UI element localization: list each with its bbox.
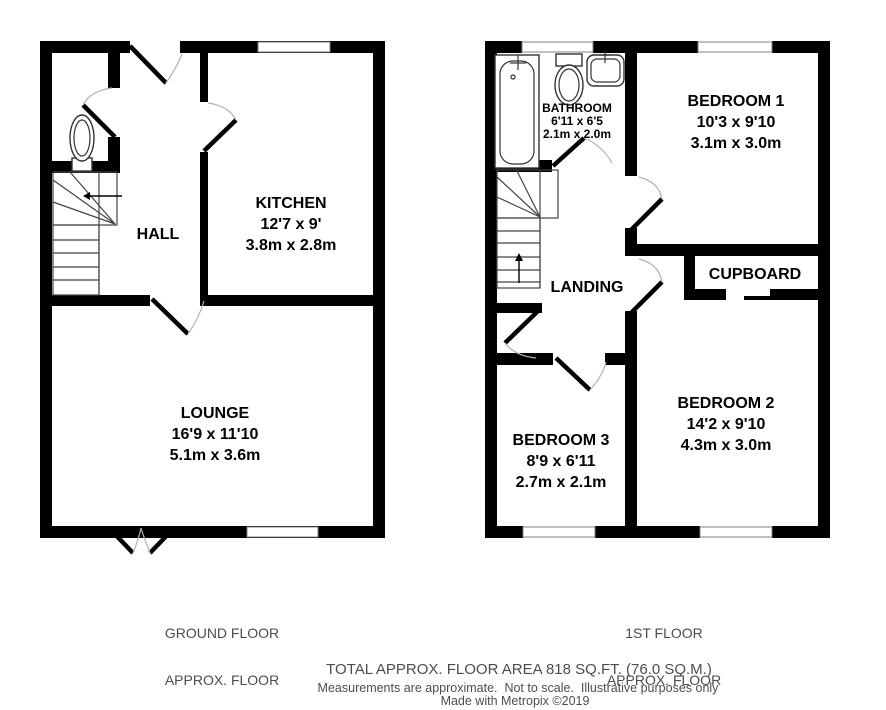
bedroom3-dim-imperial: 8'9 x 6'11 [513, 451, 610, 472]
gf-caption-line1: GROUND FLOOR [165, 626, 279, 642]
bedroom1-dim-imperial: 10'3 x 9'10 [688, 112, 785, 133]
bedroom1-door-leaf [631, 199, 662, 230]
ff-stairs [497, 170, 558, 288]
bedroom2-dim-imperial: 14'2 x 9'10 [678, 414, 775, 435]
lounge-dim-imperial: 16'9 x 11'10 [170, 424, 261, 445]
bedroom3-door-leaf [556, 358, 590, 390]
floorplan-canvas: HALL KITCHEN 12'7 x 9' 3.8m x 2.8m LOUNG… [0, 0, 886, 710]
hall-name: HALL [137, 224, 180, 245]
entrance-door-leaf [130, 46, 166, 83]
gf-interior-walls [40, 53, 385, 306]
bedroom1-dim-metric: 3.1m x 3.0m [688, 133, 785, 154]
bedroom2-door-arc [639, 259, 662, 282]
kitchen-dim-metric: 3.8m x 2.8m [246, 235, 337, 256]
ff-bathtub [495, 55, 539, 168]
bedroom2-door-leaf [631, 282, 662, 313]
lounge-dim-metric: 5.1m x 3.6m [170, 445, 261, 466]
bathroom-door-arc [584, 138, 612, 163]
hall-label: HALL [137, 224, 180, 245]
kitchen-label: KITCHEN 12'7 x 9' 3.8m x 2.8m [246, 193, 337, 256]
cupboard-door-panel [744, 296, 774, 300]
ff-sink [587, 51, 624, 86]
lounge-label: LOUNGE 16'9 x 11'10 5.1m x 3.6m [170, 403, 261, 466]
bedroom3-name: BEDROOM 3 [513, 430, 610, 451]
bedroom3-dim-metric: 2.7m x 2.1m [513, 472, 610, 493]
landing-label: LANDING [551, 277, 624, 298]
lounge-name: LOUNGE [170, 403, 261, 424]
cupboard-label: CUPBOARD [709, 264, 801, 285]
bedroom3-window [523, 527, 595, 537]
bedroom2-dim-metric: 4.3m x 3.0m [678, 435, 775, 456]
bedroom1-label: BEDROOM 1 10'3 x 9'10 3.1m x 3.0m [688, 91, 785, 154]
bedroom3-door-arc [590, 362, 606, 390]
total-area-caption: TOTAL APPROX. FLOOR AREA 818 SQ.FT. (76.… [326, 662, 712, 678]
kitchen-door-leaf [204, 120, 236, 151]
landing-door-leaf [505, 311, 538, 343]
bedroom1-window [698, 42, 772, 52]
bathroom-door-leaf [553, 138, 584, 166]
gf-stairs [53, 172, 122, 295]
kitchen-dim-imperial: 12'7 x 9' [246, 214, 337, 235]
bathroom-label: BATHROOM 6'11 x 6'5 2.1m x 2.0m [542, 102, 612, 141]
gf-stairs-direction-arrow [83, 192, 122, 200]
entrance-door-arc [166, 54, 182, 83]
wc-door-arc [83, 88, 112, 105]
ff-doors [505, 138, 662, 390]
gf-caption-line2: APPROX. FLOOR [165, 673, 279, 689]
kitchen-name: KITCHEN [246, 193, 337, 214]
ff-toilet [555, 54, 583, 105]
gf-kitchen-window [258, 42, 330, 52]
gf-toilet [70, 115, 94, 171]
gf-lounge-window [247, 527, 318, 537]
bedroom1-name: BEDROOM 1 [688, 91, 785, 112]
bedroom1-door-arc [639, 177, 662, 199]
cupboard-name: CUPBOARD [709, 264, 801, 285]
ff-caption-line1: 1ST FLOOR [607, 626, 721, 642]
bedroom2-label: BEDROOM 2 14'2 x 9'10 4.3m x 3.0m [678, 393, 775, 456]
bathroom-dim-metric: 2.1m x 2.0m [542, 128, 612, 141]
credit-text: Made with Metropix ©2019 [441, 694, 590, 710]
bedroom2-window [700, 527, 772, 537]
lounge-door-leaf [152, 299, 188, 334]
bathroom-window [522, 42, 593, 52]
ground-floor-caption: GROUND FLOOR APPROX. FLOOR AREA 409 SQ.F… [165, 595, 279, 710]
bedroom3-label: BEDROOM 3 8'9 x 6'11 2.7m x 2.1m [513, 430, 610, 493]
bedroom2-name: BEDROOM 2 [678, 393, 775, 414]
ground-floor-plan [40, 41, 385, 553]
landing-name: LANDING [551, 277, 624, 298]
kitchen-door-arc [208, 103, 236, 120]
